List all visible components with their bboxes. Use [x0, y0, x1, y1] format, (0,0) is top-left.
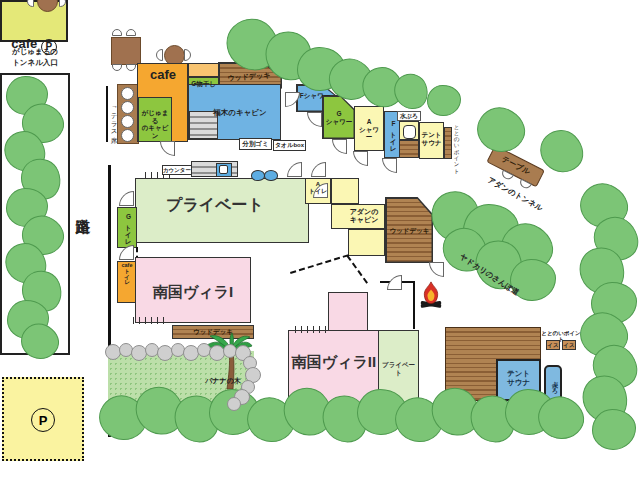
parking-p-label: P [39, 413, 48, 428]
trash-sign [239, 138, 272, 150]
stool-icon [121, 129, 134, 142]
bench-strip [444, 127, 452, 159]
cafe-annex [188, 63, 219, 77]
square-table-icon [111, 37, 141, 65]
door-arc-icon [332, 139, 347, 154]
chair-icon [156, 49, 163, 61]
terrace-wall [106, 86, 108, 142]
tree-icon [592, 409, 636, 450]
door-arc-icon [429, 262, 444, 277]
road-label: 道路 [72, 184, 92, 230]
campsite-map: cafe P がじゅまるの トンネル入口 道路 →テラス席 [0, 0, 640, 480]
adan-cabin-r1 [331, 178, 359, 204]
adan-cabin-r3 [348, 229, 385, 256]
chair-icon [184, 49, 191, 61]
tree-icon [510, 259, 556, 301]
tent-sauna-top [419, 122, 444, 159]
stone-icon [227, 397, 241, 411]
adan-cabin-r2 [331, 204, 385, 229]
door-arc-icon [287, 162, 302, 177]
chair-box [546, 340, 560, 350]
cafe-parking-box [0, 0, 68, 42]
dashed-boundary [290, 254, 349, 274]
sink-basin-icon [219, 165, 228, 174]
wood-deck-adan [385, 197, 433, 263]
stool-icon [121, 87, 134, 100]
door-arc-icon [307, 112, 322, 127]
g-toilet [117, 207, 137, 248]
bathtub-icon [403, 125, 416, 139]
chair-box [562, 340, 576, 350]
door-arc-icon [311, 162, 326, 177]
fence-ticks [133, 317, 169, 324]
small-deck [399, 140, 419, 158]
chair-icon [126, 29, 136, 36]
gajumaru-cabin [138, 97, 172, 142]
steps-icon [189, 111, 218, 139]
villa1-building [135, 257, 251, 323]
mizuburo-top-sign [397, 111, 421, 121]
fence-ticks [295, 326, 327, 333]
stool-icon [121, 115, 134, 128]
campfire-icon [416, 280, 446, 310]
parking-p-circle: P [31, 408, 55, 432]
counter-sign [162, 165, 192, 175]
g-shower [322, 95, 355, 139]
door-arc-icon [382, 158, 397, 173]
cafe-toilet [117, 261, 137, 303]
tree-icon [470, 100, 531, 160]
chair-icon [126, 64, 136, 71]
dashed-boundary [346, 255, 368, 284]
tree-icon [427, 85, 461, 116]
private-area [135, 178, 309, 243]
towel-box-sign [273, 140, 306, 151]
door-arc-icon [160, 141, 175, 156]
villa2-tower [328, 292, 368, 332]
chair-icon [112, 64, 122, 71]
tunnel-entrance-label: がじゅまるの トンネル入口 [2, 46, 68, 69]
totonoi-top-label: ととのいポイント [452, 120, 460, 172]
door-arc-icon [353, 151, 368, 166]
chair-icon [112, 29, 122, 36]
stool-icon [264, 170, 278, 181]
door-arc-icon [387, 275, 402, 290]
stool-icon [251, 170, 265, 181]
wall-line [413, 281, 415, 329]
door-arc-icon [119, 191, 134, 206]
stool-icon [121, 101, 134, 114]
a-shower [354, 106, 384, 151]
